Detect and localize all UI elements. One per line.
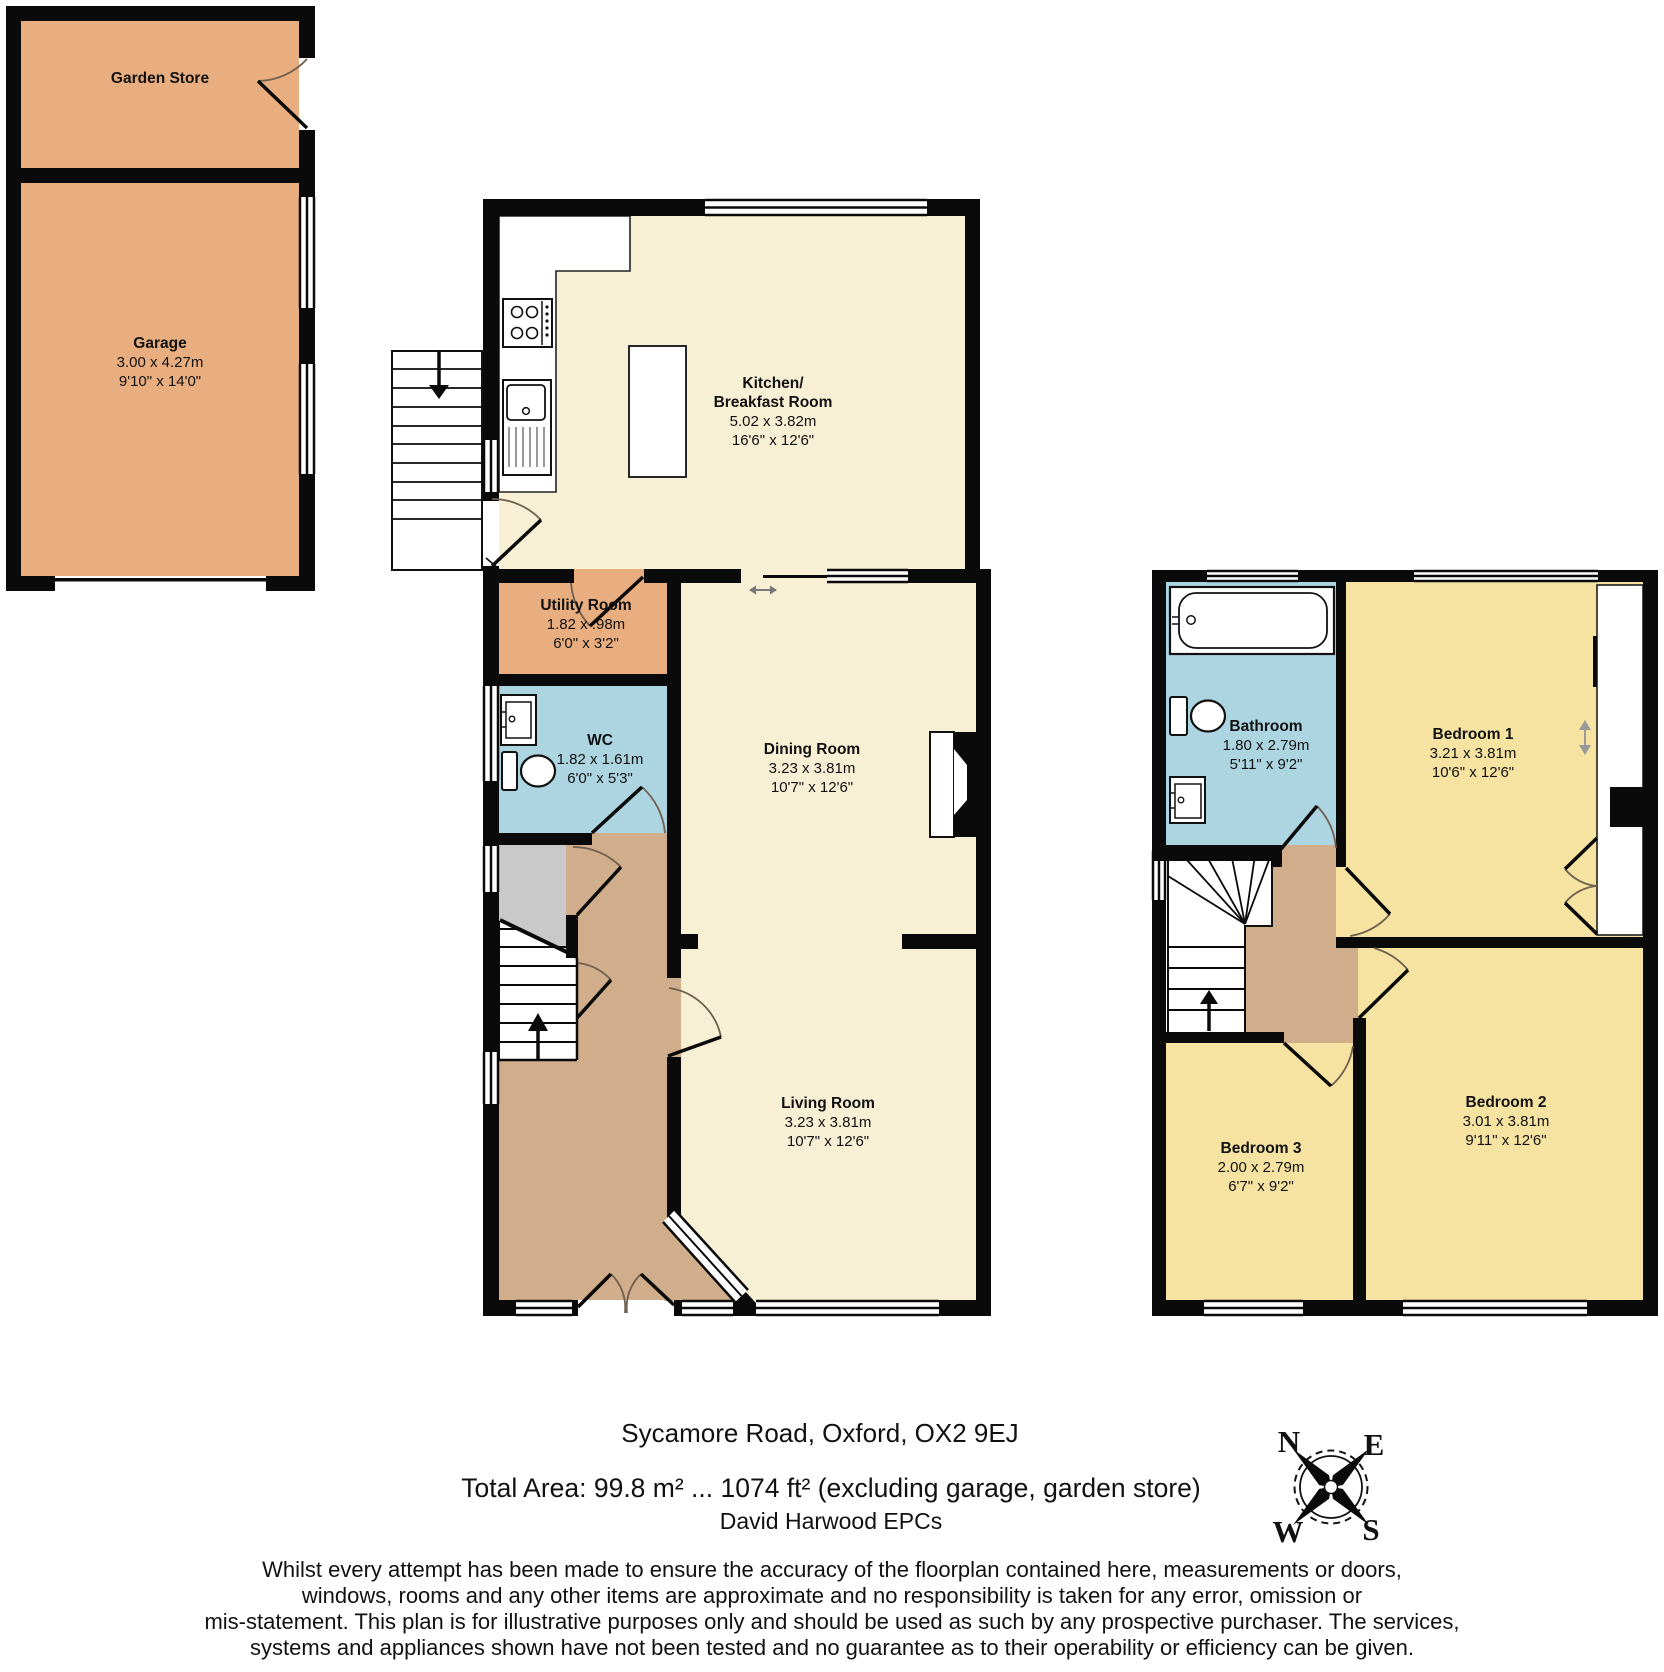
svg-text:mis-statement. This plan is fo: mis-statement. This plan is for illustra… <box>204 1609 1459 1634</box>
svg-text:10'7" x 12'6": 10'7" x 12'6" <box>771 779 853 796</box>
svg-text:Total Area: 99.8 m² ... 1074 f: Total Area: 99.8 m² ... 1074 ft² (exclud… <box>461 1473 1200 1503</box>
svg-text:6'0" x 3'2": 6'0" x 3'2" <box>553 635 619 652</box>
svg-text:3.23 x 3.81m: 3.23 x 3.81m <box>769 760 856 777</box>
svg-text:WC: WC <box>587 732 613 749</box>
svg-text:9'11" x 12'6": 9'11" x 12'6" <box>1465 1132 1546 1149</box>
svg-text:Bedroom 3: Bedroom 3 <box>1221 1140 1302 1157</box>
svg-text:1.82 x .98m: 1.82 x .98m <box>547 616 625 633</box>
svg-text:S: S <box>1362 1512 1379 1547</box>
svg-text:6'0" x 5'3": 6'0" x 5'3" <box>567 770 633 787</box>
svg-text:9'10" x 14'0": 9'10" x 14'0" <box>119 373 201 390</box>
svg-text:E: E <box>1364 1427 1385 1462</box>
svg-text:10'7" x 12'6": 10'7" x 12'6" <box>787 1133 869 1150</box>
svg-text:N: N <box>1278 1424 1300 1459</box>
svg-text:Dining Room: Dining Room <box>764 741 860 758</box>
svg-text:W: W <box>1273 1514 1304 1549</box>
svg-text:Bedroom 1: Bedroom 1 <box>1433 726 1514 743</box>
svg-text:1.82 x 1.61m: 1.82 x 1.61m <box>557 751 644 768</box>
svg-text:6'7" x 9'2": 6'7" x 9'2" <box>1228 1178 1294 1195</box>
svg-text:1.80 x 2.79m: 1.80 x 2.79m <box>1223 737 1310 754</box>
svg-text:16'6" x 12'6": 16'6" x 12'6" <box>732 432 814 449</box>
svg-text:2.00 x 2.79m: 2.00 x 2.79m <box>1218 1159 1305 1176</box>
svg-text:3.01 x 3.81m: 3.01 x 3.81m <box>1463 1113 1550 1130</box>
svg-text:David Harwood EPCs: David Harwood EPCs <box>720 1508 942 1534</box>
svg-text:Whilst every attempt has been: Whilst every attempt has been made to en… <box>262 1557 1402 1582</box>
svg-text:Breakfast Room: Breakfast Room <box>714 394 833 411</box>
svg-text:3.23 x 3.81m: 3.23 x 3.81m <box>785 1114 872 1131</box>
svg-text:windows, rooms and any other i: windows, rooms and any other items are a… <box>301 1583 1362 1608</box>
svg-text:Garage: Garage <box>133 335 187 352</box>
svg-text:Garden Store: Garden Store <box>111 70 210 87</box>
svg-text:5'11" x 9'2": 5'11" x 9'2" <box>1230 756 1303 773</box>
svg-text:Bedroom 2: Bedroom 2 <box>1466 1094 1547 1111</box>
svg-text:10'6" x 12'6": 10'6" x 12'6" <box>1432 764 1514 781</box>
svg-text:3.00 x 4.27m: 3.00 x 4.27m <box>117 354 204 371</box>
svg-text:Utility Room: Utility Room <box>540 597 631 614</box>
svg-text:Kitchen/: Kitchen/ <box>742 375 804 392</box>
svg-text:5.02 x 3.82m: 5.02 x 3.82m <box>730 413 817 430</box>
svg-text:Living Room: Living Room <box>781 1095 875 1112</box>
svg-text:Bathroom: Bathroom <box>1229 718 1302 735</box>
svg-text:systems and appliances shown h: systems and appliances shown have not be… <box>250 1635 1414 1660</box>
svg-text:3.21 x 3.81m: 3.21 x 3.81m <box>1430 745 1517 762</box>
svg-text:Sycamore Road, Oxford, OX2 9EJ: Sycamore Road, Oxford, OX2 9EJ <box>621 1418 1018 1448</box>
